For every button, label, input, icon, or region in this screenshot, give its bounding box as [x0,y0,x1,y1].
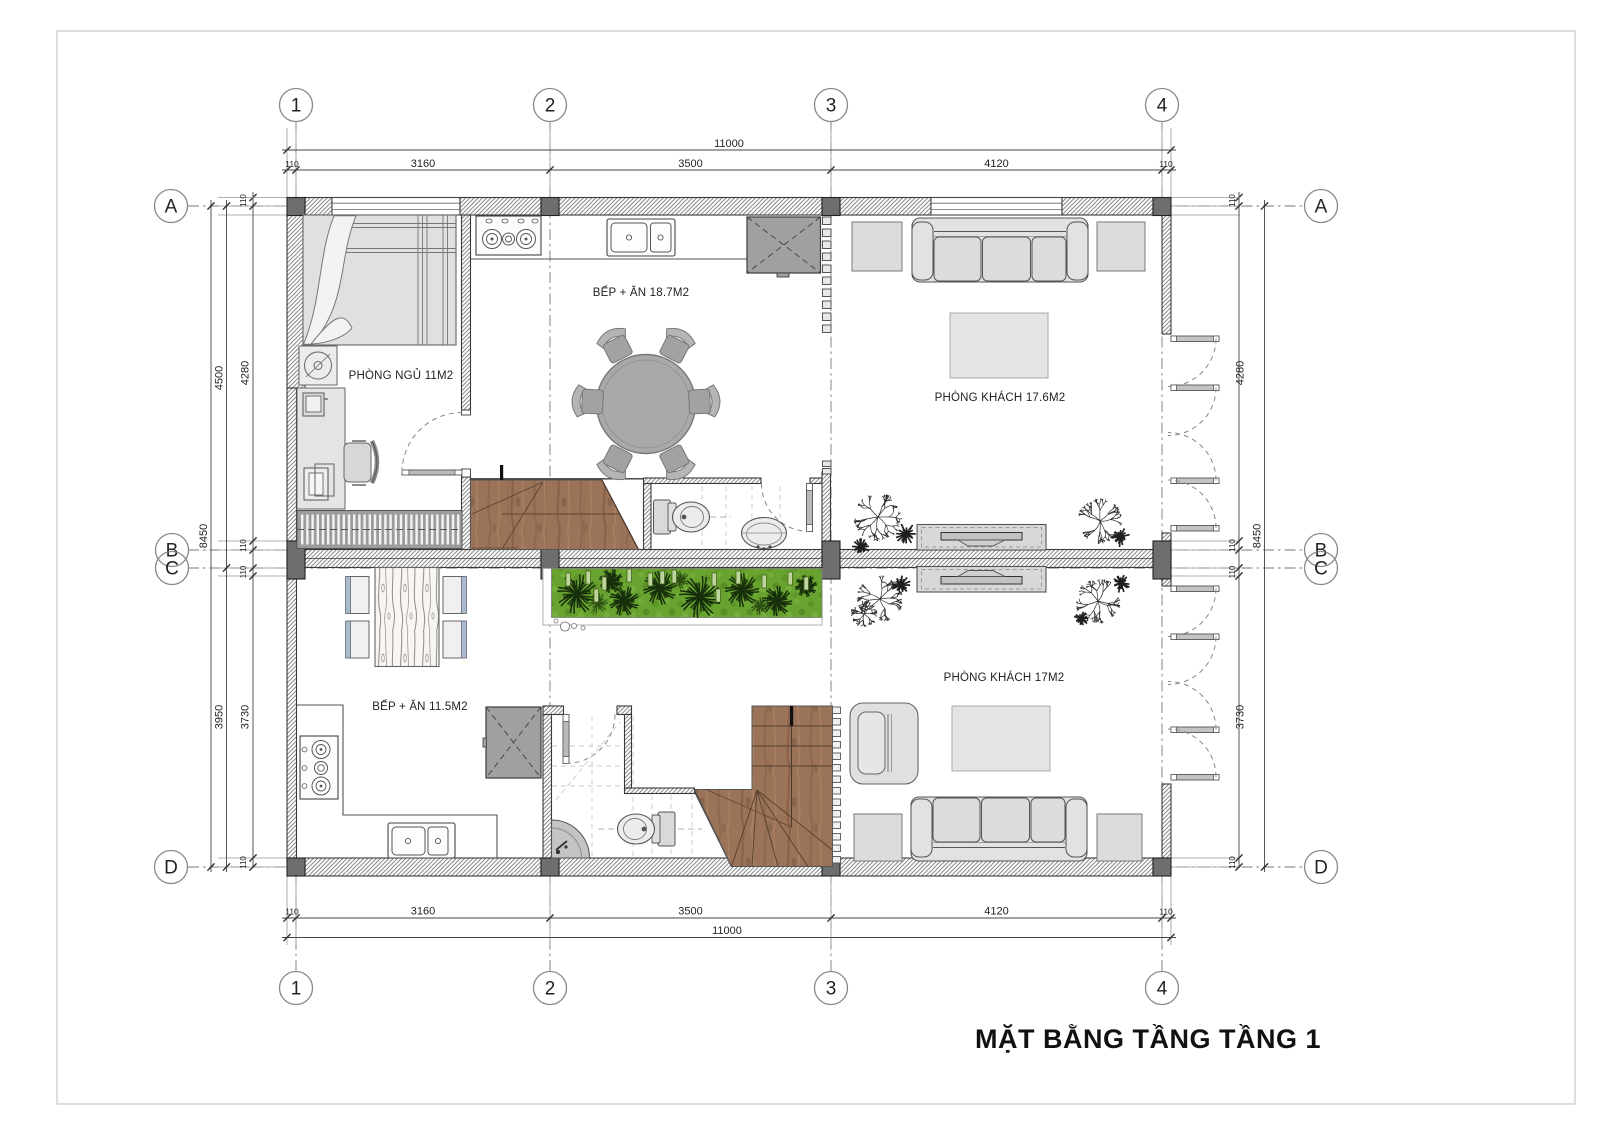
svg-text:4: 4 [1157,96,1168,117]
svg-text:3500: 3500 [678,906,702,918]
svg-text:110: 110 [239,539,248,552]
svg-text:3730: 3730 [240,705,252,729]
svg-text:11000: 11000 [714,138,744,150]
svg-text:3160: 3160 [411,906,435,918]
svg-text:D: D [1314,858,1328,879]
svg-text:110: 110 [1228,539,1237,552]
svg-text:110: 110 [1159,907,1173,917]
svg-text:3160: 3160 [411,158,435,170]
svg-text:110: 110 [239,856,248,869]
svg-text:1: 1 [291,979,302,1000]
svg-text:3: 3 [826,979,837,1000]
svg-text:110: 110 [285,907,299,917]
svg-text:1: 1 [291,96,302,117]
svg-text:110: 110 [285,159,299,169]
svg-text:3: 3 [826,96,837,117]
svg-text:A: A [165,197,178,218]
svg-text:A: A [1315,197,1328,218]
svg-text:8450: 8450 [1252,524,1264,548]
svg-text:C: C [165,559,179,580]
svg-text:4120: 4120 [984,906,1008,918]
svg-text:C: C [1314,559,1328,580]
svg-text:4280: 4280 [240,361,252,385]
svg-text:110: 110 [1228,856,1237,869]
svg-text:BẾP + ĂN 11.5M2: BẾP + ĂN 11.5M2 [372,700,468,713]
svg-text:110: 110 [1228,194,1237,207]
svg-text:110: 110 [1159,159,1173,169]
svg-text:PHÒNG KHÁCH 17M2: PHÒNG KHÁCH 17M2 [944,671,1065,684]
svg-text:11000: 11000 [712,925,742,937]
svg-text:3730: 3730 [1235,705,1247,729]
svg-text:3500: 3500 [678,158,702,170]
svg-text:3950: 3950 [214,705,226,729]
svg-text:4: 4 [1157,979,1168,1000]
svg-text:110: 110 [239,194,248,207]
svg-text:MẶT BẰNG TẦNG TẦNG 1: MẶT BẰNG TẦNG TẦNG 1 [975,1023,1321,1054]
svg-text:D: D [164,858,178,879]
svg-text:8450: 8450 [198,524,210,548]
svg-text:4280: 4280 [1235,361,1247,385]
svg-text:2: 2 [545,979,556,1000]
svg-text:PHÒNG KHÁCH 17.6M2: PHÒNG KHÁCH 17.6M2 [935,391,1066,404]
svg-text:4120: 4120 [984,158,1008,170]
svg-text:110: 110 [1228,565,1237,578]
svg-text:2: 2 [545,96,556,117]
svg-text:4500: 4500 [214,366,226,390]
svg-text:110: 110 [239,565,248,578]
svg-text:BẾP + ĂN 18.7M2: BẾP + ĂN 18.7M2 [593,286,689,299]
svg-text:PHÒNG NGỦ 11M2: PHÒNG NGỦ 11M2 [349,369,454,382]
